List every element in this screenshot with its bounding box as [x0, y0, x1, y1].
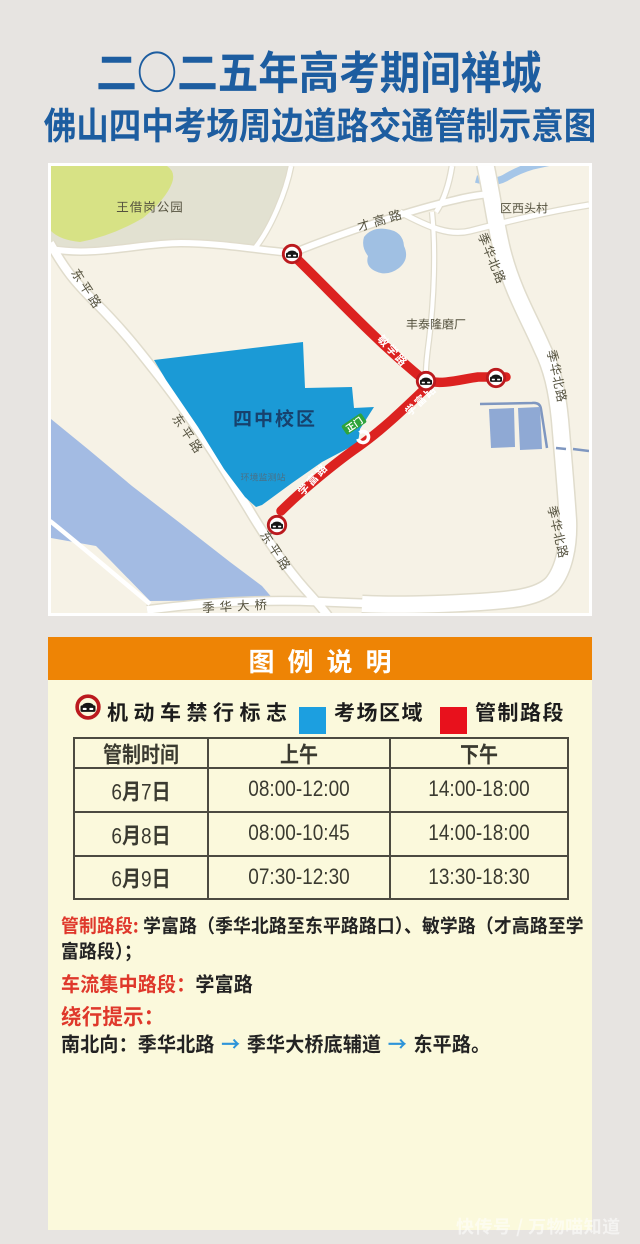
svg-text:四中校区: 四中校区: [233, 405, 317, 432]
svg-text:环境监测站: 环境监测站: [240, 471, 285, 484]
svg-text:区西头村: 区西头村: [500, 200, 548, 217]
svg-text:季华大桥: 季华大桥: [202, 594, 273, 613]
svg-text:丰泰隆磨厂: 丰泰隆磨厂: [406, 316, 466, 333]
svg-text:王借岗公园: 王借岗公园: [116, 197, 184, 216]
